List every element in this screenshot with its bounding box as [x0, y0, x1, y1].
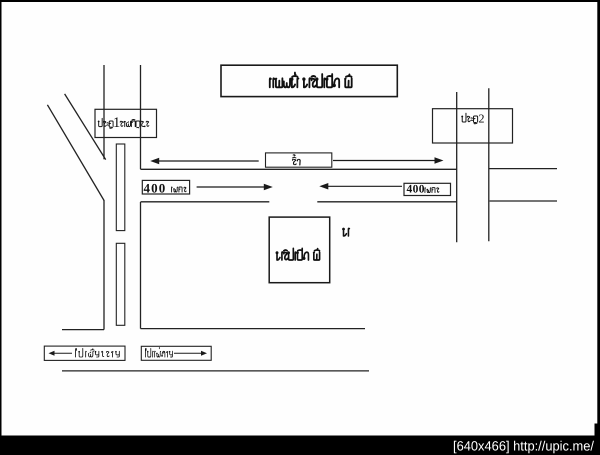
svg-text:400: 400 — [144, 180, 167, 195]
svg-text:1: 1 — [113, 115, 120, 131]
svg-text:400: 400 — [407, 184, 425, 196]
svg-text:[640x466] http://upic.me/: [640x466] http://upic.me/ — [453, 439, 594, 454]
svg-text:2: 2 — [479, 111, 485, 125]
